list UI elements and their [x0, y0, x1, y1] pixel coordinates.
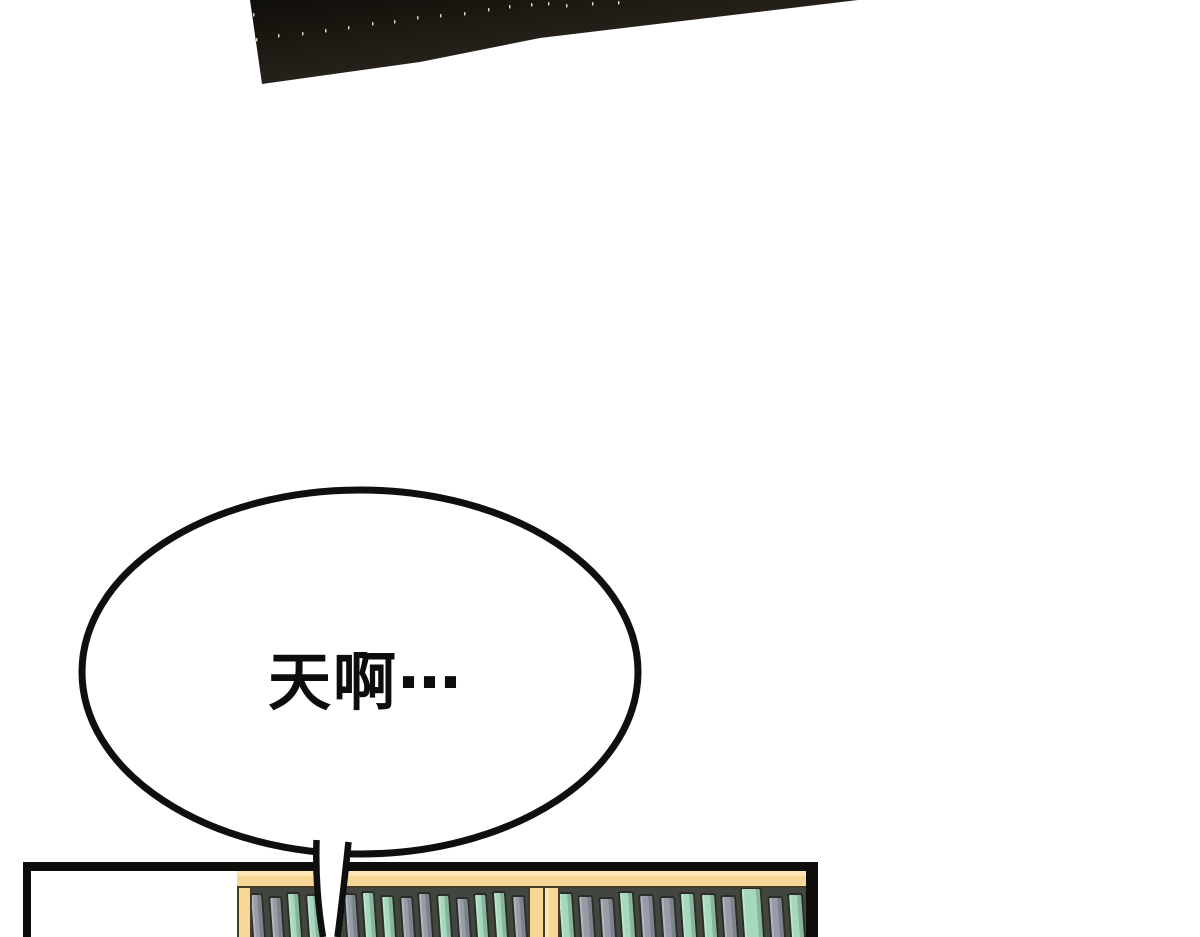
bookshelf [237, 871, 806, 937]
book-spine [417, 892, 434, 937]
book-spine [787, 893, 806, 937]
star-speck [325, 29, 327, 33]
book-spine [618, 891, 637, 937]
book-spine [511, 895, 528, 937]
star-speck [464, 12, 466, 16]
panel-border-right [806, 862, 818, 937]
dark-angled-panel [0, 0, 900, 100]
book-spine [305, 894, 322, 937]
star-speck [372, 22, 374, 26]
book-spine [699, 893, 718, 937]
book-spine [455, 897, 472, 937]
book-spine [767, 896, 786, 937]
star-speck [278, 34, 280, 38]
book-spine [577, 895, 596, 937]
panel-border-top [23, 862, 818, 871]
room-wall [31, 871, 237, 937]
book-spine [399, 896, 416, 937]
star-speck [548, 2, 550, 6]
book-spine [679, 892, 698, 937]
bookshelf-section-right [560, 888, 806, 937]
star-speck [566, 4, 568, 8]
bookshelf-section-left [252, 888, 528, 937]
book-spine [436, 894, 453, 937]
star-speck [417, 16, 419, 20]
comic-page: 天啊⋯ [0, 0, 1200, 937]
book-spine [342, 893, 359, 937]
star-speck [509, 5, 511, 9]
star-speck [531, 3, 533, 7]
book-spine [286, 892, 303, 937]
star-speck [348, 26, 350, 30]
star-speck [618, 1, 620, 5]
book-spine [638, 894, 657, 937]
book-spine [473, 893, 490, 937]
book-spine [324, 897, 341, 937]
book-spine [380, 895, 397, 937]
book-spine [598, 897, 617, 937]
bubble-text: 天啊⋯ [268, 651, 463, 714]
star-speck [488, 8, 490, 12]
book-spine [740, 887, 765, 937]
star-speck [440, 14, 442, 18]
panel-border-left [23, 862, 31, 937]
star-speck [256, 38, 258, 42]
book-spine [720, 895, 739, 937]
star-speck [394, 20, 396, 24]
book-spine [492, 891, 509, 937]
dark-panel-shape [250, 0, 858, 84]
book-spine [361, 891, 378, 937]
book-spine [268, 896, 285, 937]
star-speck [302, 32, 304, 36]
star-speck [592, 2, 594, 6]
book-spine [659, 896, 678, 937]
speech-bubble [0, 0, 1200, 937]
bookshelf-top-board [237, 871, 806, 888]
star-speck [253, 13, 255, 17]
